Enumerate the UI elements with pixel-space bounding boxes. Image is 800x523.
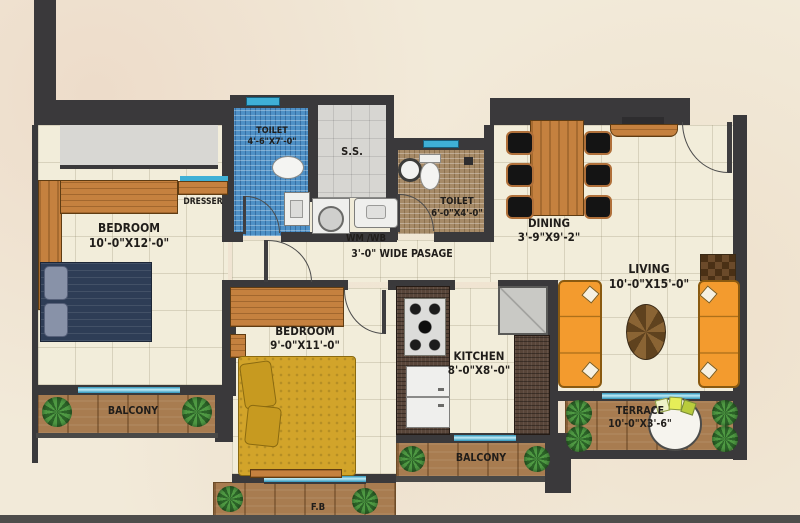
room-label-ss: S.S.	[341, 145, 363, 159]
wall	[565, 450, 747, 459]
floor-plan: BEDROOM 10'-0"X12'-0" DRESSER TOILET 4'-…	[0, 0, 800, 523]
room-label-toilet2: TOILET 6'-0"X4'-0"	[431, 196, 483, 220]
dining-chair	[584, 163, 612, 187]
fridge-divider	[406, 396, 450, 398]
coffee-table	[626, 304, 666, 360]
plant	[712, 400, 738, 426]
plant	[566, 426, 592, 452]
bedroom2-wardrobe	[230, 287, 344, 327]
room-name: LIVING	[609, 262, 689, 277]
dresser	[178, 181, 228, 195]
fridge-handle	[438, 388, 444, 391]
shoe-console	[610, 124, 678, 137]
pillow	[244, 404, 282, 447]
wall	[222, 104, 234, 242]
wall	[38, 385, 78, 395]
duct-ledge	[60, 125, 218, 169]
room-label-terrace: TERRACE 10'-0"X3'-6"	[608, 405, 672, 431]
plant	[712, 426, 738, 452]
wall	[180, 385, 228, 395]
plant	[399, 446, 425, 472]
room-name: TERRACE	[608, 405, 672, 418]
dining-chair	[584, 195, 612, 219]
plant	[352, 488, 378, 514]
room-label-kitchen: KITCHEN 8'-0"X8'-0"	[448, 349, 511, 378]
room-label-flower-bed: F.B	[311, 502, 325, 514]
wall	[308, 95, 318, 202]
room-name: BEDROOM	[89, 221, 169, 236]
room-label-toilet1: TOILET 4'-6"X7'-0"	[248, 126, 297, 149]
room-label-bedroom2: BEDROOM 9'-0"X11'-0"	[270, 324, 340, 353]
room-name: BEDROOM	[270, 324, 340, 338]
wall	[230, 232, 243, 242]
room-dims: 3'-9"X9'-2"	[518, 230, 581, 244]
room-name: TOILET	[248, 126, 297, 137]
balcony-bottom-rail	[396, 476, 550, 482]
balcony-left-rail	[36, 433, 218, 438]
room-name: TOILET	[431, 196, 483, 208]
room-dims: 9'-0"X11'-0"	[270, 338, 340, 352]
plant	[217, 486, 243, 512]
bedroom2-nightstand	[230, 334, 246, 358]
wall	[484, 125, 494, 242]
dining-chair	[584, 131, 612, 155]
wall	[366, 474, 396, 483]
utility-basin-bowl	[366, 205, 386, 219]
room-label-dining: DINING 3'-9"X9'-2"	[518, 216, 581, 245]
room-name: DINING	[518, 216, 581, 230]
room-dims: 4'-6"X7'-0"	[248, 137, 297, 148]
plant	[182, 397, 212, 427]
pillow	[44, 303, 68, 337]
wall	[314, 95, 390, 105]
toilet2-fitting	[464, 157, 473, 165]
fridge-handle	[438, 404, 444, 407]
bed-footboard	[250, 469, 342, 478]
toilet2-commode	[420, 162, 440, 190]
bedroom1-wardrobe	[60, 180, 178, 214]
wall	[700, 391, 735, 401]
tv-rug	[700, 254, 736, 281]
kitchen-counter-right	[514, 335, 550, 435]
room-dims: 10'-0"X3'-6"	[608, 418, 672, 431]
room-label-living: LIVING 10'-0"X15'-0"	[609, 262, 689, 292]
dining-chair	[506, 163, 534, 187]
kitchen-window	[454, 433, 516, 443]
dining-chair	[506, 131, 534, 155]
room-dims: 6'-0"X4'-0"	[431, 208, 483, 220]
label-passage: 3'-0" WIDE PASAGE	[351, 248, 452, 261]
room-label-bedroom1: BEDROOM 10'-0"X12'-0"	[89, 221, 169, 251]
room-label-balcony-bottom: BALCONY	[456, 452, 506, 465]
room-dims: 10'-0"X12'-0"	[89, 236, 169, 251]
image-edge-strip	[0, 515, 800, 523]
washing-machine-drum	[318, 206, 344, 232]
room-dims: 8'-0"X8'-0"	[448, 363, 511, 377]
kitchen-platform	[498, 286, 548, 335]
bedroom1-window	[78, 385, 180, 395]
wall	[34, 100, 232, 125]
wall	[434, 232, 484, 242]
toilet2-window	[423, 140, 459, 148]
room-label-balcony-left: BALCONY	[108, 405, 158, 418]
pillow	[239, 360, 277, 410]
stove	[404, 298, 446, 356]
label-wm-wb: WM /WB	[346, 233, 386, 245]
pillow	[44, 266, 68, 300]
toilet1-commode	[272, 156, 304, 179]
room-dims: 10'-0"X15'-0"	[609, 277, 689, 292]
plant	[42, 397, 72, 427]
room-name: KITCHEN	[448, 349, 511, 363]
toilet1-basin-bowl	[290, 200, 303, 218]
plant	[566, 400, 592, 426]
plant	[524, 446, 550, 472]
label-dresser: DRESSER	[183, 197, 222, 208]
toilet1-window	[246, 97, 280, 106]
dining-table	[530, 120, 584, 216]
